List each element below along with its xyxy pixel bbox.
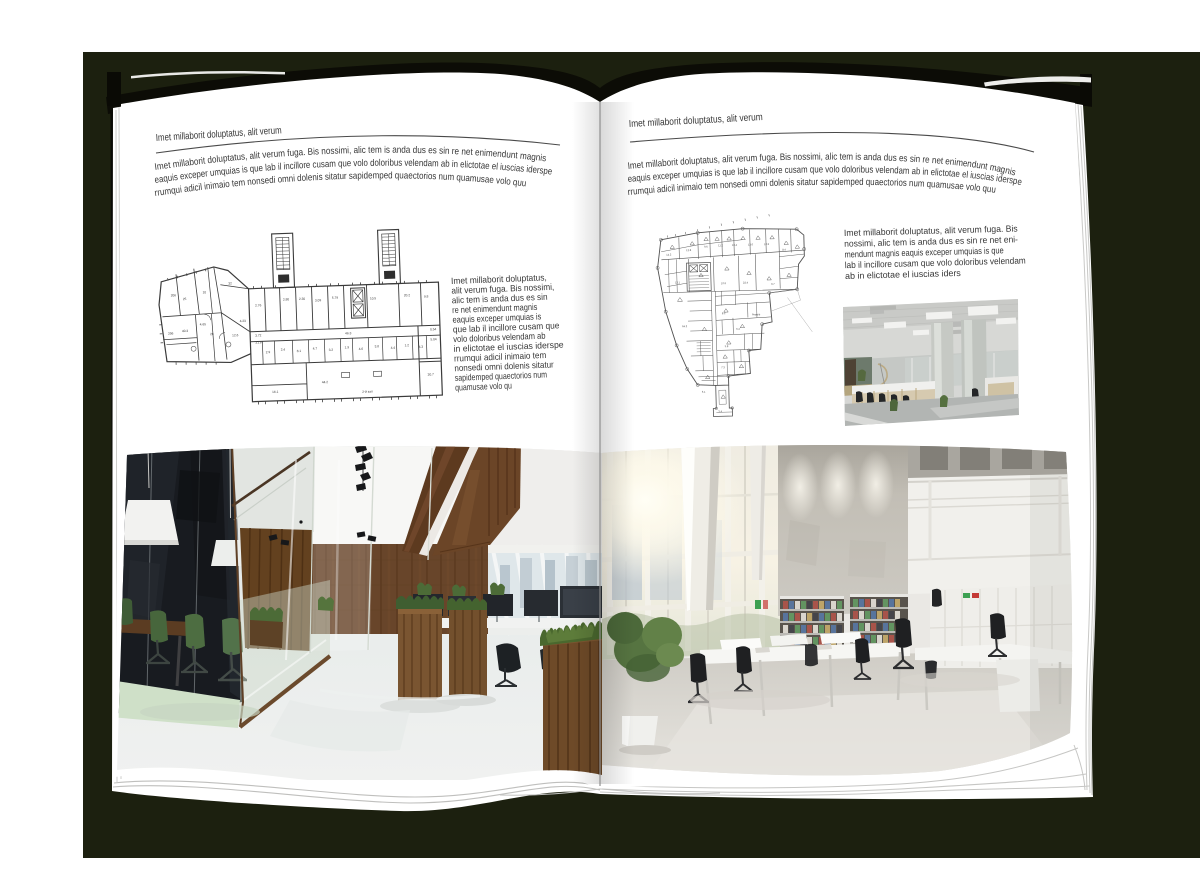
svg-text:4.65: 4.65 (200, 322, 207, 326)
svg-text:5.79: 5.79 (332, 296, 339, 300)
svg-text:4.23: 4.23 (240, 319, 247, 323)
svg-text:12.8: 12.8 (686, 248, 692, 252)
svg-text:206: 206 (171, 293, 177, 297)
svg-text:46.3: 46.3 (345, 331, 352, 335)
svg-text:2.9: 2.9 (266, 350, 271, 354)
svg-text:13.1: 13.1 (675, 280, 681, 284)
svg-text:21.8: 21.8 (255, 340, 262, 344)
svg-text:9.8: 9.8 (424, 294, 429, 298)
svg-text:40.3: 40.3 (182, 329, 189, 333)
svg-text:12.2: 12.2 (764, 242, 770, 246)
svg-text:13.6: 13.6 (748, 242, 754, 246)
svg-text:16.1: 16.1 (272, 390, 279, 394)
svg-text:2.80: 2.80 (283, 297, 290, 301)
svg-text:3.72: 3.72 (255, 333, 262, 337)
svg-text:1.2: 1.2 (405, 343, 410, 347)
svg-text:22.4: 22.4 (743, 281, 749, 285)
svg-text:4.6: 4.6 (359, 347, 364, 351)
svg-text:4.3: 4.3 (419, 345, 424, 349)
svg-text:20.2: 20.2 (404, 293, 411, 297)
svg-text:4.4: 4.4 (391, 346, 396, 350)
svg-text:3.09: 3.09 (315, 298, 322, 302)
svg-text:30.7: 30.7 (428, 372, 435, 376)
svg-text:3.8: 3.8 (375, 344, 380, 348)
svg-text:14.2: 14.2 (666, 252, 672, 256)
svg-text:Резерв: Резерв (752, 312, 761, 316)
svg-text:11.2: 11.2 (718, 243, 724, 247)
svg-text:44.2: 44.2 (322, 380, 329, 384)
svg-text:2-й зал: 2-й зал (362, 389, 373, 393)
svg-text:5.04: 5.04 (430, 337, 437, 341)
svg-text:2.4: 2.4 (281, 348, 286, 352)
svg-text:26: 26 (210, 332, 214, 336)
svg-text:8.1: 8.1 (297, 349, 302, 353)
svg-text:64.2: 64.2 (682, 324, 688, 328)
svg-text:32: 32 (228, 281, 232, 285)
svg-text:10.5: 10.5 (370, 296, 377, 300)
svg-text:10.4: 10.4 (732, 243, 738, 247)
svg-text:10.6: 10.6 (721, 281, 727, 285)
svg-text:2.30: 2.30 (299, 297, 306, 301)
svg-text:4.7: 4.7 (313, 346, 318, 350)
svg-text:0.54: 0.54 (430, 327, 437, 331)
svg-text:1.9: 1.9 (345, 345, 350, 349)
svg-text:206: 206 (168, 331, 174, 335)
svg-text:3.2: 3.2 (329, 348, 334, 352)
svg-text:12.6: 12.6 (232, 333, 239, 337)
svg-text:2.76: 2.76 (255, 303, 262, 307)
svg-text:10: 10 (203, 290, 207, 294)
svg-text:25: 25 (183, 297, 187, 301)
